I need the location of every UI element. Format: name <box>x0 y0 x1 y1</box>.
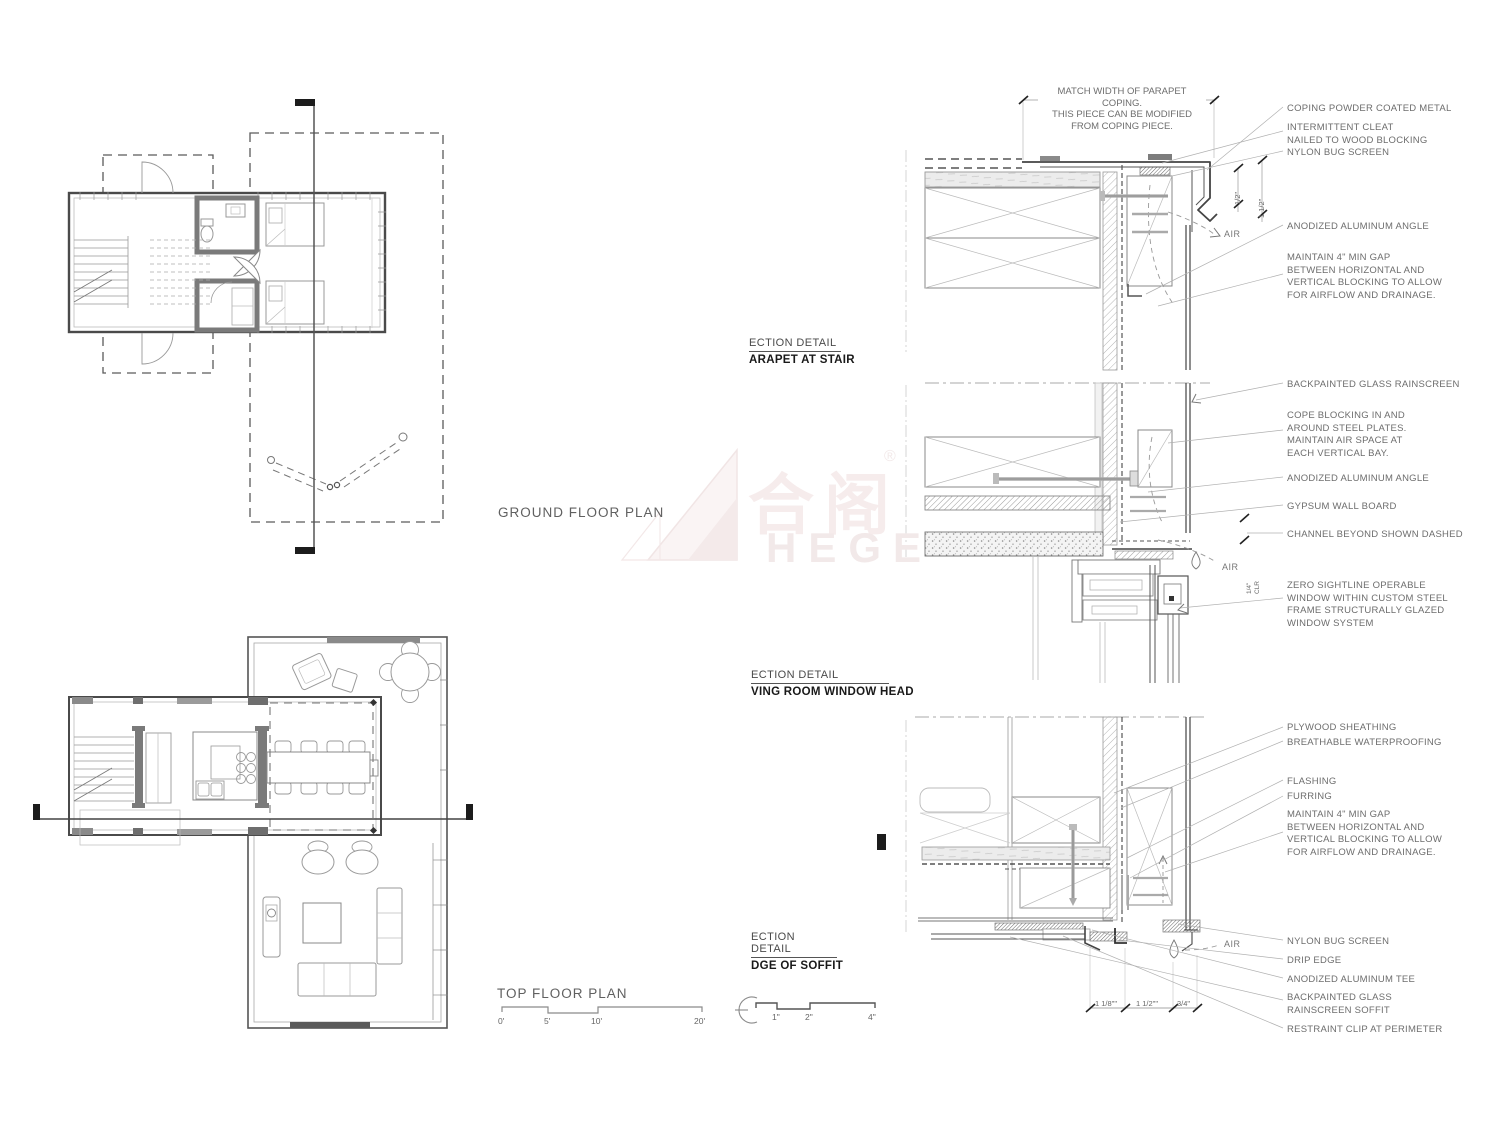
title-soffit-line2: DGE OF SOFFIT <box>751 960 843 972</box>
dim-soffit-1: 1 1/8"" <box>1095 999 1117 1008</box>
annotation-furring: FURRING <box>1287 791 1500 804</box>
annotation-aluminum-angle-mid: ANODIZED ALUMINUM ANGLE <box>1287 473 1500 486</box>
watermark-latin: HEGE <box>766 524 933 572</box>
detail-soffit <box>877 717 1283 1028</box>
drawing-sheet: 合阁 ® HEGE GROUND FLOOR PLAN TOP FLOOR PL… <box>0 0 1500 1127</box>
annotation-aluminum-angle-top: ANODIZED ALUMINUM ANGLE <box>1287 221 1500 234</box>
annotation-waterproofing: BREATHABLE WATERPROOFING <box>1287 737 1500 750</box>
annotation-cleat: INTERMITTENT CLEAT NAILED TO WOOD BLOCKI… <box>1287 122 1500 147</box>
scale-feet-0: 0' <box>498 1016 504 1026</box>
annotation-channel-dashed: CHANNEL BEYOND SHOWN DASHED <box>1287 529 1500 542</box>
annotation-glass-rainscreen: BACKPAINTED GLASS RAINSCREEN <box>1287 379 1500 392</box>
dim-quarter-clear: 1/4" CLR <box>1246 581 1262 594</box>
air-label-mid: AIR <box>1222 562 1239 572</box>
air-label-top: AIR <box>1224 229 1241 239</box>
dim-soffit-2: 1 1/2"" <box>1136 999 1158 1008</box>
scale-feet-20: 20' <box>694 1016 705 1026</box>
title-living-room-window-head: ECTION DETAIL VING ROOM WINDOW HEAD <box>751 669 914 698</box>
title-window-head-line1: ECTION DETAIL <box>751 669 889 684</box>
parapet-coping-note: MATCH WIDTH OF PARAPET COPING. THIS PIEC… <box>1038 86 1206 132</box>
annotation-min-gap-top: MAINTAIN 4" MIN GAP BETWEEN HORIZONTAL A… <box>1287 252 1500 302</box>
scale-feet-10: 10' <box>591 1016 602 1026</box>
annotation-min-gap-bottom: MAINTAIN 4" MIN GAP BETWEEN HORIZONTAL A… <box>1287 809 1500 859</box>
annotation-coping: COPING POWDER COATED METAL <box>1287 103 1500 116</box>
annotation-bug-screen-bottom: NYLON BUG SCREEN <box>1287 936 1500 949</box>
top-floor-plan-label: TOP FLOOR PLAN <box>497 986 628 1001</box>
ground-floor-plan-label: GROUND FLOOR PLAN <box>498 505 664 520</box>
scale-inch-1: 1" <box>772 1012 780 1022</box>
title-parapet-line1: ECTION DETAIL <box>749 337 841 352</box>
title-edge-of-soffit: ECTION DETAIL DGE OF SOFFIT <box>751 931 843 972</box>
air-label-bottom: AIR <box>1224 939 1241 949</box>
title-parapet-at-stair: ECTION DETAIL ARAPET AT STAIR <box>749 337 855 366</box>
scale-feet-5: 5' <box>544 1016 550 1026</box>
annotation-cope-blocking: COPE BLOCKING IN AND AROUND STEEL PLATES… <box>1287 410 1500 460</box>
scale-inch-4: 4" <box>868 1012 876 1022</box>
annotation-aluminum-tee: ANODIZED ALUMINUM TEE <box>1287 974 1500 987</box>
annotation-flashing: FLASHING <box>1287 776 1500 789</box>
annotation-plywood: PLYWOOD SHEATHING <box>1287 722 1500 735</box>
title-soffit-line1: ECTION DETAIL <box>751 931 837 958</box>
annotation-restraint-clip: RESTRAINT CLIP AT PERIMETER <box>1287 1024 1500 1037</box>
detail-window-head <box>906 383 1283 683</box>
annotation-rainscreen-soffit: BACKPAINTED GLASS RAINSCREEN SOFFIT <box>1287 992 1500 1017</box>
top-floor-plan <box>33 637 473 1028</box>
title-parapet-line2: ARAPET AT STAIR <box>749 354 855 366</box>
title-window-head-line2: VING ROOM WINDOW HEAD <box>751 686 914 698</box>
linework-canvas <box>0 0 1500 1127</box>
ground-floor-plan <box>69 99 443 554</box>
annotation-drip-edge: DRIP EDGE <box>1287 955 1500 968</box>
scale-inch-2: 2" <box>805 1012 813 1022</box>
dim-half-inch: 1/2" <box>1234 192 1242 205</box>
annotation-zero-sightline-window: ZERO SIGHTLINE OPERABLE WINDOW WITHIN CU… <box>1287 580 1500 630</box>
dim-one-and-half-inch: 1 1/2" <box>1258 199 1266 218</box>
dim-soffit-3: 3/4" <box>1177 999 1190 1008</box>
annotation-gypsum-board: GYPSUM WALL BOARD <box>1287 501 1500 514</box>
watermark-registered-mark: ® <box>884 448 896 466</box>
annotation-bug-screen-top: NYLON BUG SCREEN <box>1287 147 1500 160</box>
